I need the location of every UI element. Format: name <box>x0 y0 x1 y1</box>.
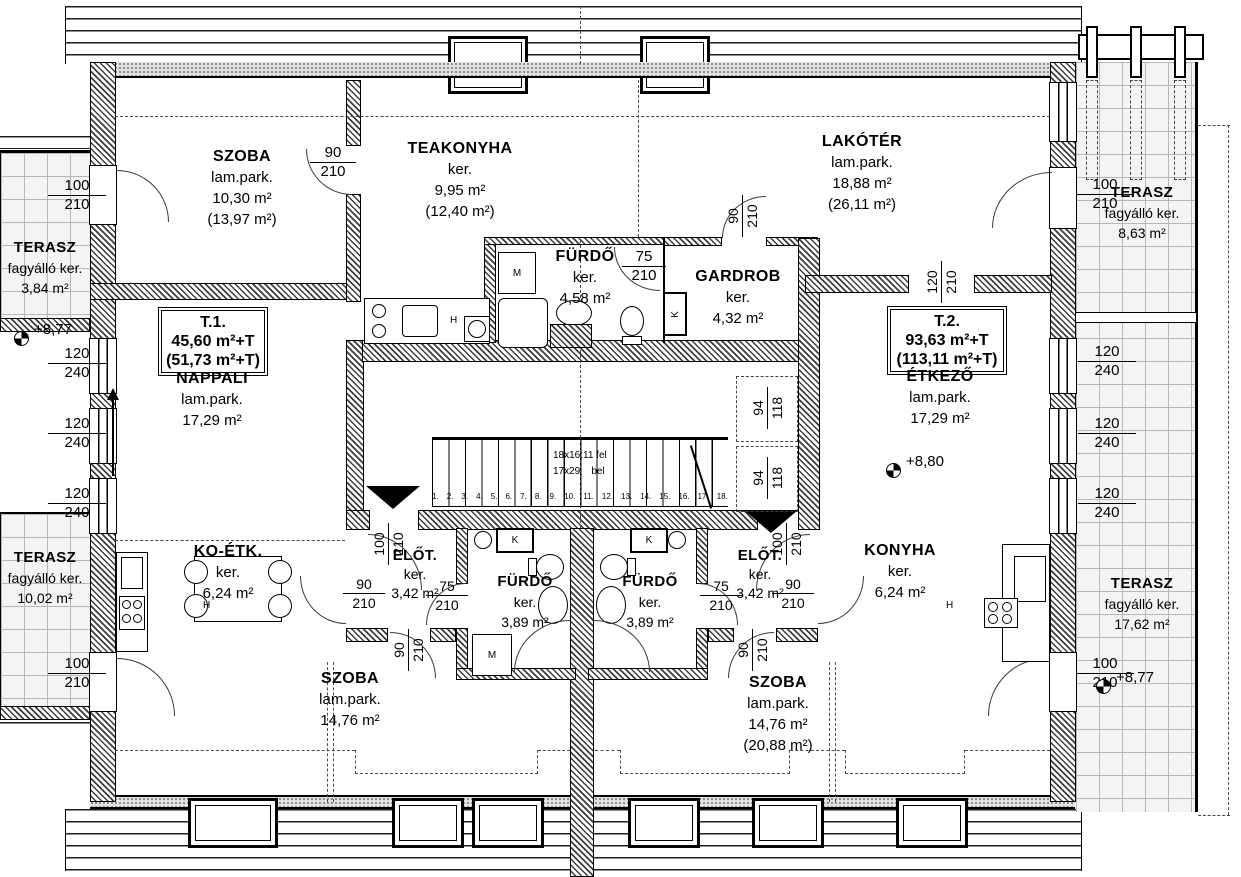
dim-width: 90 <box>356 576 372 592</box>
stair-step-number: 15. <box>659 492 670 501</box>
room-finish: ker. <box>194 562 263 583</box>
stair-step-number: 3. <box>461 492 468 501</box>
level-symbol-icon <box>1096 679 1111 694</box>
window-right-3 <box>1049 478 1077 534</box>
room-name: LAKÓTÉR <box>822 131 902 152</box>
room-finish: fagyálló ker. <box>8 258 83 278</box>
roof-overhang-dashed-bottom <box>1198 815 1230 816</box>
terrace-bl-parapet <box>0 706 90 720</box>
knee-wall-left-1 <box>115 750 355 751</box>
chimney-label: K <box>646 535 653 546</box>
party-wall <box>570 528 594 877</box>
wall-szoba-teakonyha-lower <box>346 194 361 302</box>
dim-height: 210 <box>744 204 760 227</box>
dim-window-100x210-left-top: 100210 <box>48 178 106 213</box>
dim-height: 240 <box>1094 505 1119 521</box>
dim-width: 90 <box>325 145 342 161</box>
room-label-nappali: NAPPALI lam.park. 17,29 m² <box>176 368 248 431</box>
window-right-1 <box>1049 338 1077 394</box>
stair-step-number: 12. <box>602 492 613 501</box>
dim-width: 120 <box>1094 416 1119 432</box>
room-name: TERASZ <box>8 548 83 568</box>
room-area-total: (26,11 m²) <box>822 194 902 215</box>
wall-lakoter-south-1 <box>805 275 909 293</box>
dim-width: 120 <box>924 270 940 293</box>
dim-window-120x240-left-1: 120240 <box>48 346 106 381</box>
wall-elot-r-south-2 <box>776 628 818 642</box>
terrace-tl-eave <box>0 136 90 149</box>
level-value: +8,80 <box>906 453 944 470</box>
fridge-label: H <box>946 600 953 611</box>
room-name: SZOBA <box>319 668 381 689</box>
room-label-szoba-top-left: SZOBA lam.park. 10,30 m² (13,97 m²) <box>207 146 276 230</box>
chimney-shaft-furdo-top <box>550 324 592 348</box>
dim-door-90x210-elot-l: 90210 <box>343 576 385 611</box>
dim-height: 118 <box>769 397 785 419</box>
wall-szoba-teakonyha-upper <box>346 80 361 146</box>
dim-door-90x210-szoba-bl: 90210 <box>380 620 436 680</box>
room-finish: fagyálló ker. <box>8 568 83 588</box>
dim-height: 210 <box>390 532 406 555</box>
dim-height: 210 <box>64 675 89 691</box>
room-label-szoba-bl: SZOBA lam.park. 14,76 m² <box>319 668 381 731</box>
shower-tray-icon <box>498 298 548 348</box>
room-label-lakoter: LAKÓTÉR lam.park. 18,88 m² (26,11 m²) <box>822 131 902 215</box>
dim-width: 100 <box>371 532 387 555</box>
room-finish: ker. <box>622 592 677 612</box>
knee-wall-right-1 <box>595 750 620 751</box>
pergola-post-1 <box>1086 26 1098 78</box>
door-opening-right-top <box>1049 167 1077 229</box>
room-finish: lam.park. <box>822 152 902 173</box>
roof-slope-line-top <box>115 116 1050 117</box>
apartment-id: T.2. <box>894 312 1000 331</box>
wall-furdo-br-east-1 <box>696 528 708 584</box>
vent-icon <box>474 531 492 549</box>
roof-window-bottom-2 <box>392 798 464 848</box>
dim-window-120x240-left-2: 120240 <box>48 416 106 451</box>
room-area: 10,30 m² <box>207 188 276 209</box>
dim-height: 118 <box>769 467 785 489</box>
apartment-area: 45,60 m²+T <box>165 332 261 351</box>
apartment-box-t1: T.1. 45,60 m²+T (51,73 m²+T) <box>158 307 268 376</box>
chimney-box-left: K <box>496 528 534 553</box>
dim-door-75x210: 75210 <box>622 249 666 284</box>
fridge-letter: H <box>203 600 210 611</box>
dim-door-75x210-furdo-br: 75210 <box>700 578 742 613</box>
dim-door-90x210: 90210 <box>310 145 356 180</box>
terrace-right-step <box>1076 312 1196 323</box>
stair-step-number: 6. <box>505 492 512 501</box>
room-area: 10,02 m² <box>8 588 83 608</box>
dim-height: 210 <box>709 597 732 613</box>
stair-step-number: 13. <box>621 492 632 501</box>
terrace-bl-eave <box>0 722 90 734</box>
room-name: TEAKONYHA <box>408 138 513 159</box>
room-finish: lam.park. <box>743 693 812 714</box>
dim-door-90x210-gardrob: 90210 <box>714 186 770 246</box>
room-area: 17,29 m² <box>176 410 248 431</box>
dim-width: 100 <box>64 656 89 672</box>
burner-icon <box>133 614 142 623</box>
room-label-ko-etk: KO-ÉTK. ker. 6,24 m² <box>194 541 263 604</box>
room-finish: lam.park. <box>207 167 276 188</box>
apartment-area: 93,63 m²+T <box>894 331 1000 350</box>
dim-height: 210 <box>788 532 804 555</box>
direction-arrow-line <box>112 398 114 476</box>
stair-step-number: 14. <box>640 492 651 501</box>
room-label-gardrob: GARDROB ker. 4,32 m² <box>695 266 780 329</box>
fridge-letter: H <box>946 600 953 611</box>
washing-machine-box: M <box>472 634 512 676</box>
dim-width: 100 <box>64 178 89 194</box>
stair-note-tread-text: 17x29 <box>553 466 580 477</box>
wall-lakoter-south-2 <box>974 275 1052 293</box>
dim-door-90x210-elot-r: 90210 <box>772 576 814 611</box>
axis-dashed-br-2 <box>835 662 836 802</box>
room-finish: ker. <box>695 287 780 308</box>
axis-dashed-top <box>580 6 581 64</box>
dim-door-100x210-left-bottom: 100210 <box>48 656 106 691</box>
chimney-label: K <box>669 311 680 318</box>
door-arc-terrace-szoba-bl <box>117 658 175 716</box>
room-finish: ker. <box>408 159 513 180</box>
burner-icon <box>372 304 386 318</box>
apartment-box-t2: T.2. 93,63 m²+T (113,11 m²+T) <box>887 306 1007 375</box>
stair-step-number: 4. <box>476 492 483 501</box>
dim-height: 210 <box>1092 196 1117 212</box>
room-area: 3,89 m² <box>497 612 552 632</box>
room-area: 6,24 m² <box>864 582 936 603</box>
dim-width: 100 <box>769 532 785 555</box>
room-finish: fagyálló ker. <box>1105 594 1180 614</box>
room-finish: lam.park. <box>319 689 381 710</box>
room-finish: ker. <box>864 561 936 582</box>
stair-note-dir-text: bel <box>591 466 604 477</box>
wall-stair-south-2 <box>418 510 758 530</box>
room-label-terasz-bl: TERASZ fagyálló ker. 10,02 m² <box>8 548 83 608</box>
room-name: FÜRDŐ <box>622 572 677 592</box>
dim-door-100x210-elot-l: 100210 <box>360 514 416 574</box>
roof-window-bottom-6 <box>896 798 968 848</box>
burner-icon <box>372 324 386 338</box>
roof-window-bottom-5 <box>752 798 824 848</box>
washing-machine-label: M <box>488 650 496 661</box>
dim-window-120x240-left-3: 120240 <box>48 486 106 521</box>
sink-icon <box>121 557 143 589</box>
burner-icon <box>1002 614 1012 624</box>
dim-height: 210 <box>754 638 770 661</box>
room-area: 14,76 m² <box>319 710 381 731</box>
room-label-terasz-br: TERASZ fagyálló ker. 17,62 m² <box>1105 574 1180 634</box>
dim-height: 240 <box>64 505 89 521</box>
level-symbol-icon <box>14 331 29 346</box>
knee-wall-left-2 <box>538 750 570 751</box>
burner-icon <box>122 614 131 623</box>
roof-window-bottom-1 <box>188 798 278 848</box>
room-area: 4,32 m² <box>695 308 780 329</box>
roof-window-bottom-4 <box>628 798 700 848</box>
dim-window-120x240-right-3: 120240 <box>1078 486 1136 521</box>
room-name: TERASZ <box>8 238 83 258</box>
knee-wall-left-notch <box>355 750 538 774</box>
dim-width: 100 <box>1092 656 1117 672</box>
room-area: 3,84 m² <box>8 278 83 298</box>
dim-door-120x210-lakoter: 120210 <box>913 252 969 312</box>
room-name: SZOBA <box>207 146 276 167</box>
room-area: 14,76 m² <box>743 714 812 735</box>
room-label-szoba-br: SZOBA lam.park. 14,76 m² (20,88 m²) <box>743 672 812 756</box>
dim-roof-window-94x118-lower: 94118 <box>739 448 795 508</box>
entry-marker-left <box>366 486 420 509</box>
burner-icon <box>988 614 998 624</box>
dim-width: 75 <box>713 578 729 594</box>
stair-note-tread: 17x29 bel <box>553 466 605 477</box>
washing-machine-box: M <box>498 252 536 294</box>
level-mark-terrace-left: +8,77 <box>14 330 72 347</box>
insulation-top <box>90 62 1078 78</box>
stair-step-number: 1. <box>432 492 439 501</box>
door-opening-right-bottom <box>1049 652 1077 712</box>
burner-icon <box>988 602 998 612</box>
toilet-icon <box>620 306 644 336</box>
dim-door-90x210-szoba-br: 90210 <box>724 620 780 680</box>
stair-step-number: 5. <box>491 492 498 501</box>
dim-width: 94 <box>750 400 766 416</box>
window-right-2 <box>1049 408 1077 464</box>
dim-height: 210 <box>64 197 89 213</box>
toilet-tank-icon <box>622 336 642 345</box>
level-symbol-icon <box>886 463 901 478</box>
door-arc-ko-etk <box>300 576 346 624</box>
room-area-total: (13,97 m²) <box>207 209 276 230</box>
stair-step-number: 10. <box>564 492 575 501</box>
room-label-konyha: KONYHA ker. 6,24 m² <box>864 540 936 603</box>
room-area: 18,88 m² <box>822 173 902 194</box>
level-mark-etkezo: +8,80 <box>886 462 944 479</box>
door-arc-terrace-szoba-br <box>988 658 1046 716</box>
burner-icon <box>1002 602 1012 612</box>
round-sink-icon <box>468 320 486 338</box>
dim-height: 210 <box>352 595 375 611</box>
dim-height: 240 <box>64 365 89 381</box>
room-label-furdo-br: FÜRDŐ ker. 3,89 m² <box>622 572 677 632</box>
dim-window-120x240-right-1: 120240 <box>1078 344 1136 379</box>
dim-width: 75 <box>636 249 653 265</box>
dim-height: 210 <box>320 164 345 180</box>
dim-window-120x240-right-2: 120240 <box>1078 416 1136 451</box>
dim-width: 90 <box>725 208 741 224</box>
room-finish: lam.park. <box>906 387 973 408</box>
room-name: FÜRDŐ <box>556 246 615 267</box>
apartment-id: T.1. <box>165 313 261 332</box>
fridge-label: H <box>450 315 457 326</box>
dim-width: 120 <box>1094 344 1119 360</box>
dim-door-100x210-right-top: 100210 <box>1076 177 1134 212</box>
door-arc-lakoter-terrace <box>992 172 1052 228</box>
dim-height: 240 <box>64 435 89 451</box>
dim-height: 240 <box>1094 435 1119 451</box>
room-name: KONYHA <box>864 540 936 561</box>
stair-step-number: 8. <box>535 492 542 501</box>
room-label-teakonyha: TEAKONYHA ker. 9,95 m² (12,40 m²) <box>408 138 513 222</box>
dim-width: 120 <box>1094 486 1119 502</box>
chimney-label: K <box>512 535 519 546</box>
dim-width: 90 <box>391 642 407 658</box>
room-area: 17,29 m² <box>906 408 973 429</box>
stair-step-number: 18. <box>717 492 728 501</box>
room-name: TERASZ <box>1105 574 1180 594</box>
dim-width: 120 <box>64 346 89 362</box>
pergola-post-3 <box>1174 26 1186 78</box>
level-value: +8,77 <box>34 321 72 338</box>
burner-icon <box>133 600 142 609</box>
dim-height: 210 <box>631 268 656 284</box>
knee-wall-right-notch-2 <box>845 750 965 774</box>
level-mark-terrace-right: +8,77 <box>1096 678 1154 695</box>
dim-width: 90 <box>785 576 801 592</box>
axis-dashed-br-1 <box>829 662 830 802</box>
wall-stairhall-west <box>346 340 364 530</box>
room-area: 8,63 m² <box>1105 223 1180 243</box>
pergola-post-outline-2 <box>1130 80 1142 180</box>
fridge-letter: H <box>450 315 457 326</box>
fridge-label: H <box>203 600 210 611</box>
stair-step-number: 17. <box>698 492 709 501</box>
chair-icon <box>268 594 292 618</box>
dim-height: 210 <box>435 597 458 613</box>
window-right-top <box>1049 82 1077 142</box>
direction-arrow-head <box>107 388 119 400</box>
chair-icon <box>268 560 292 584</box>
dim-height: 210 <box>943 270 959 293</box>
stair-step-number: 11. <box>583 492 594 501</box>
stair-step-number: 2. <box>447 492 454 501</box>
roof-window-bottom-3 <box>472 798 544 848</box>
sink-icon <box>1014 556 1046 602</box>
stair-step-number: 7. <box>520 492 527 501</box>
pergola-post-outline-1 <box>1086 80 1098 180</box>
dim-width: 120 <box>64 416 89 432</box>
room-label-etkezo: ÉTKEZŐ lam.park. 17,29 m² <box>906 366 973 429</box>
room-finish: ker. <box>497 592 552 612</box>
room-finish: lam.park. <box>176 389 248 410</box>
roof-top-band <box>65 6 1082 64</box>
floor-plan-canvas: 1.2.3.4.5.6.7.8.9.10.11.12.13.14.15.16.1… <box>0 0 1241 877</box>
stair-step-number: 16. <box>678 492 689 501</box>
wall-szoba-tl-south <box>90 283 348 300</box>
wall-furdo-bl-west-1 <box>456 528 468 584</box>
chimney-box-gardrob: K <box>663 292 687 336</box>
pergola-post-2 <box>1130 26 1142 78</box>
dim-door-75x210-furdo-bl: 75210 <box>426 578 468 613</box>
roof-overhang-dashed-right <box>1228 125 1229 815</box>
chimney-box-right: K <box>630 528 668 553</box>
washing-machine-label: M <box>513 268 521 279</box>
teakonyha-lakoter-divider <box>638 80 639 237</box>
door-arc-konyha <box>818 576 864 624</box>
room-area-total: (20,88 m²) <box>743 735 812 756</box>
room-area-total: (12,40 m²) <box>408 201 513 222</box>
dim-roof-window-94x118-upper: 94118 <box>739 378 795 438</box>
dim-width: 75 <box>439 578 455 594</box>
room-name: ÉTKEZŐ <box>906 366 973 387</box>
dim-width: 94 <box>750 470 766 486</box>
room-label-furdo-bl: FÜRDŐ ker. 3,89 m² <box>497 572 552 632</box>
room-area: 4,58 m² <box>556 288 615 309</box>
dim-height: 210 <box>410 638 426 661</box>
knee-wall-right-3 <box>965 750 1050 751</box>
roof-overhang-dashed-top <box>1198 125 1230 126</box>
room-name: NAPPALI <box>176 368 248 389</box>
dim-width: 120 <box>64 486 89 502</box>
room-finish: ker. <box>556 267 615 288</box>
room-area: 3,89 m² <box>622 612 677 632</box>
dim-height: 240 <box>1094 363 1119 379</box>
room-name: FÜRDŐ <box>497 572 552 592</box>
room-label-terasz-tl: TERASZ fagyálló ker. 3,84 m² <box>8 238 83 298</box>
dim-width: 100 <box>1092 177 1117 193</box>
door-arc-terrace-szoba-tl <box>117 170 169 222</box>
room-label-furdo-top: FÜRDŐ ker. 4,58 m² <box>556 246 615 309</box>
room-area: 9,95 m² <box>408 180 513 201</box>
level-value: +8,77 <box>1116 669 1154 686</box>
pergola-post-outline-3 <box>1174 80 1186 180</box>
vent-icon <box>668 531 686 549</box>
dim-width: 90 <box>735 642 751 658</box>
stair-step-number: 9. <box>550 492 557 501</box>
room-name: GARDROB <box>695 266 780 287</box>
sink-icon <box>402 305 438 337</box>
dim-door-100x210-elot-r: 100210 <box>758 514 814 574</box>
dim-height: 210 <box>781 595 804 611</box>
room-area: 17,62 m² <box>1105 614 1180 634</box>
burner-icon <box>122 600 131 609</box>
room-name: KO-ÉTK. <box>194 541 263 562</box>
